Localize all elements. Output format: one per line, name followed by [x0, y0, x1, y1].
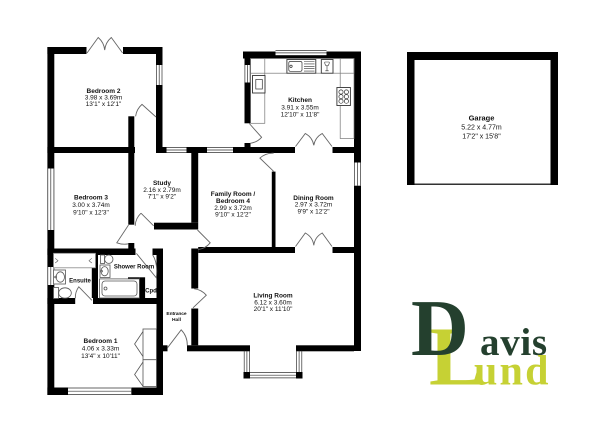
svg-text:Living Room: Living Room [253, 292, 293, 299]
svg-text:7'1" x 9'2": 7'1" x 9'2" [148, 194, 177, 201]
svg-text:4.06 x 3.33m: 4.06 x 3.33m [82, 345, 120, 352]
svg-text:9'10" x 12'2": 9'10" x 12'2" [215, 212, 251, 219]
svg-text:13'1" x 12'1": 13'1" x 12'1" [86, 101, 122, 108]
svg-text:3.91 x 3.55m: 3.91 x 3.55m [281, 104, 319, 111]
svg-text:13'4" x 10'11": 13'4" x 10'11" [81, 353, 120, 360]
svg-text:Entrance: Entrance [166, 311, 187, 317]
svg-text:Cpd: Cpd [145, 289, 157, 295]
svg-text:Ensuite: Ensuite [69, 279, 91, 285]
svg-text:9'10" x 12'3": 9'10" x 12'3" [73, 210, 109, 217]
svg-text:9'9" x 12'2": 9'9" x 12'2" [297, 209, 330, 216]
svg-text:Bedroom 1: Bedroom 1 [84, 338, 118, 345]
svg-text:3.00 x 3.74m: 3.00 x 3.74m [72, 202, 110, 209]
svg-text:5.22 x 4.77m: 5.22 x 4.77m [461, 125, 502, 132]
svg-text:Study: Study [153, 180, 171, 187]
svg-text:und: und [474, 349, 551, 395]
svg-text:12'10" x 11'8": 12'10" x 11'8" [281, 112, 320, 119]
svg-text:Shower Room: Shower Room [114, 265, 154, 271]
svg-text:D: D [411, 285, 469, 373]
svg-text:Garage: Garage [469, 114, 495, 123]
svg-text:Bedroom 3: Bedroom 3 [74, 195, 108, 202]
svg-text:20'1" x 11'10": 20'1" x 11'10" [254, 306, 293, 313]
svg-text:17'2" x 15'8": 17'2" x 15'8" [462, 134, 501, 141]
svg-text:Hall: Hall [172, 317, 182, 323]
svg-text:Kitchen: Kitchen [288, 97, 312, 104]
